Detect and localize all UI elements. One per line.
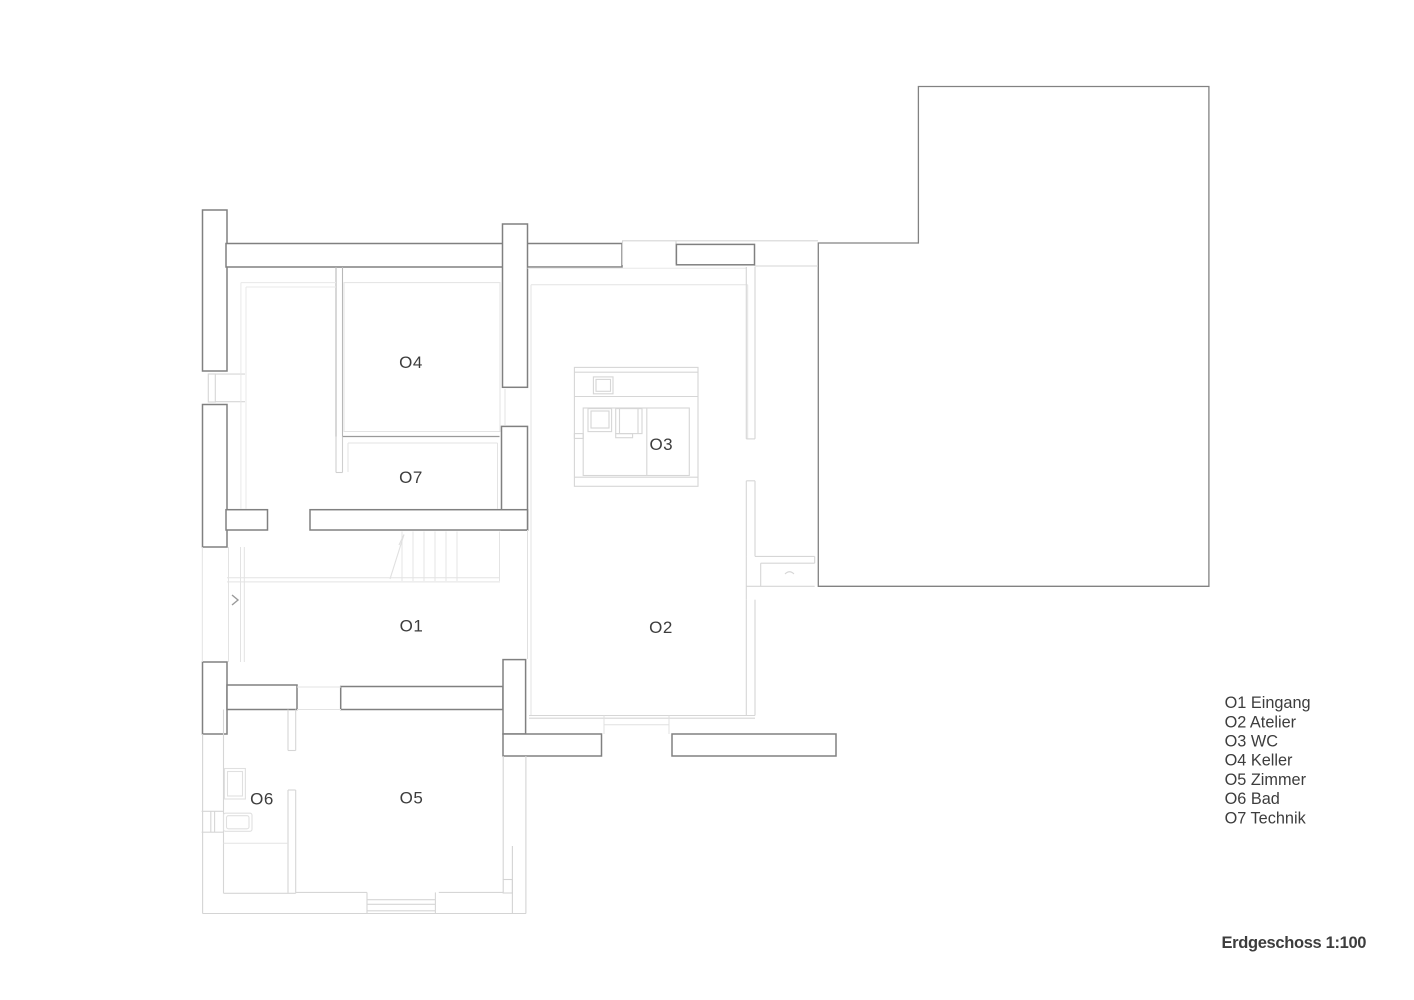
svg-text:O5 Zimmer: O5 Zimmer: [1225, 771, 1307, 789]
svg-text:O7 Technik: O7 Technik: [1225, 809, 1307, 827]
svg-text:O6: O6: [250, 790, 274, 809]
svg-text:O6 Bad: O6 Bad: [1225, 790, 1280, 808]
svg-text:O3 WC: O3 WC: [1225, 733, 1279, 751]
svg-text:O7: O7: [399, 468, 423, 487]
svg-text:O1 Eingang: O1 Eingang: [1225, 694, 1311, 712]
svg-text:Erdgeschoss 1:100: Erdgeschoss 1:100: [1222, 934, 1367, 952]
svg-text:O2: O2: [649, 618, 673, 637]
svg-text:O5: O5: [400, 789, 424, 808]
svg-text:O4 Keller: O4 Keller: [1225, 752, 1293, 770]
svg-text:O1: O1: [400, 617, 424, 636]
svg-text:O2 Atelier: O2 Atelier: [1225, 713, 1297, 731]
svg-text:O3: O3: [649, 435, 673, 454]
svg-text:O4: O4: [399, 353, 423, 372]
